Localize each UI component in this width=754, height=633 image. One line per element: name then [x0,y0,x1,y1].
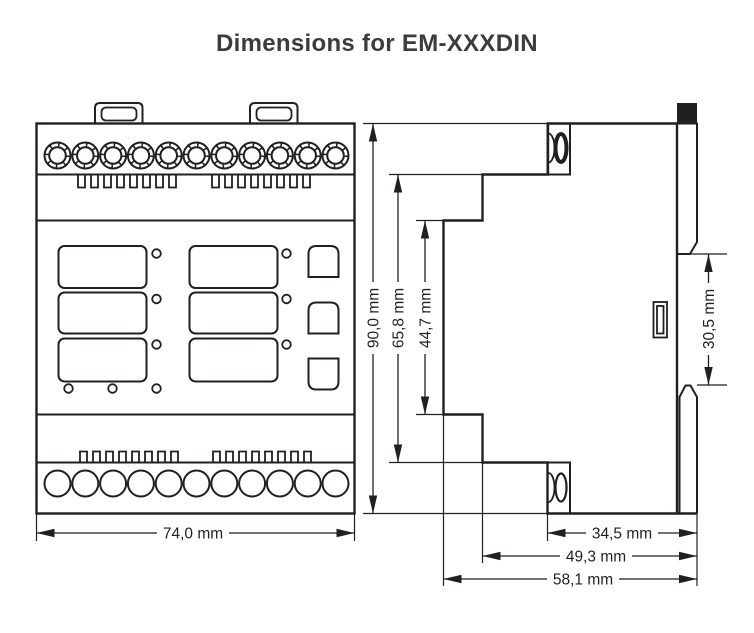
display-window [190,246,278,288]
dim-depth-step-label: 49,3 mm [566,549,626,566]
top-terminal-row [45,143,349,169]
led-indicator [282,295,291,304]
led-indicator [282,340,291,349]
dim-total-height: 90,0 mm [364,124,383,514]
terminal-hole [184,471,210,497]
dimension-annotations: 74,0 mm 90,0 mm 65,8 mm [37,124,728,589]
front-buttons [309,246,339,390]
dim-panel-height-label: 44,7 mm [418,288,435,348]
led-indicator [282,249,291,258]
terminal-hole [323,471,349,497]
dim-din-clip-label: 30,5 mm [701,289,718,349]
mounting-tab-right [250,103,298,124]
terminal-hole [128,471,154,497]
led-indicators [64,249,291,393]
screw-terminal [45,143,71,169]
terminal-hole [45,471,71,497]
led-indicator [152,295,161,304]
dim-front-width-label: 74,0 mm [163,526,223,543]
front-view [37,103,355,514]
dimension-drawing-page: Dimensions for EM-XXXDIN [0,0,754,633]
top-vent-slots-left [78,175,176,188]
led-indicator [152,340,161,349]
dim-step-height-label: 65,8 mm [391,288,408,348]
led-indicator [152,384,161,393]
dim-depth-total: 58,1 mm [444,570,698,589]
led-indicator [64,384,73,393]
button-down [309,359,339,390]
bottom-terminal-row [45,471,349,497]
dim-depth-total-label: 58,1 mm [553,572,613,589]
bottom-vent-slots-left [80,452,178,463]
screw-terminal [211,143,237,169]
screw-terminal [295,143,321,169]
screw-terminal [323,143,349,169]
dimension-diagram: 74,0 mm 90,0 mm 65,8 mm [0,0,754,633]
screw-terminal [239,143,265,169]
display-window [59,339,147,382]
din-upper-flap [677,124,697,255]
display-window [190,339,278,382]
terminal-hole [211,471,237,497]
display-window [59,246,147,288]
top-vent-slots-right [212,175,310,188]
screw-terminal [156,143,182,169]
din-latch-window [654,302,668,338]
dim-depth-terminal-label: 34,5 mm [592,526,652,543]
button-middle [309,303,339,334]
dim-depth-step: 49,3 mm [483,547,698,566]
display-windows [59,246,278,382]
side-bottom-terminal-cavity [548,463,571,514]
screw-terminal [128,143,154,169]
terminal-hole [156,471,182,497]
terminal-hole [267,471,293,497]
dim-panel-height: 44,7 mm [416,221,435,415]
screw-terminal [184,143,210,169]
terminal-hole [100,471,126,497]
display-window [190,293,278,334]
dim-total-height-label: 90,0 mm [366,288,383,348]
display-window [59,293,147,334]
dim-front-width: 74,0 mm [37,524,355,543]
din-release-tab [677,103,697,123]
terminal-hole [72,471,98,497]
side-view [444,103,698,514]
side-body-outline [444,124,698,514]
screw-terminal [100,143,126,169]
mounting-tab-left [95,103,143,124]
dim-din-clip: 30,5 mm [700,254,719,385]
screw-terminal [72,143,98,169]
led-indicator [152,249,161,258]
bottom-vent-slots-right [213,452,311,463]
terminal-hole [295,471,321,497]
terminal-hole [239,471,265,497]
side-top-terminal-cavity [548,124,571,175]
din-lower-latch [680,386,698,514]
dim-depth-terminal: 34,5 mm [548,524,698,543]
screw-terminal [267,143,293,169]
extension-lines [37,124,728,587]
dim-step-height: 65,8 mm [389,175,408,463]
button-up [309,246,339,277]
led-indicator [108,384,117,393]
